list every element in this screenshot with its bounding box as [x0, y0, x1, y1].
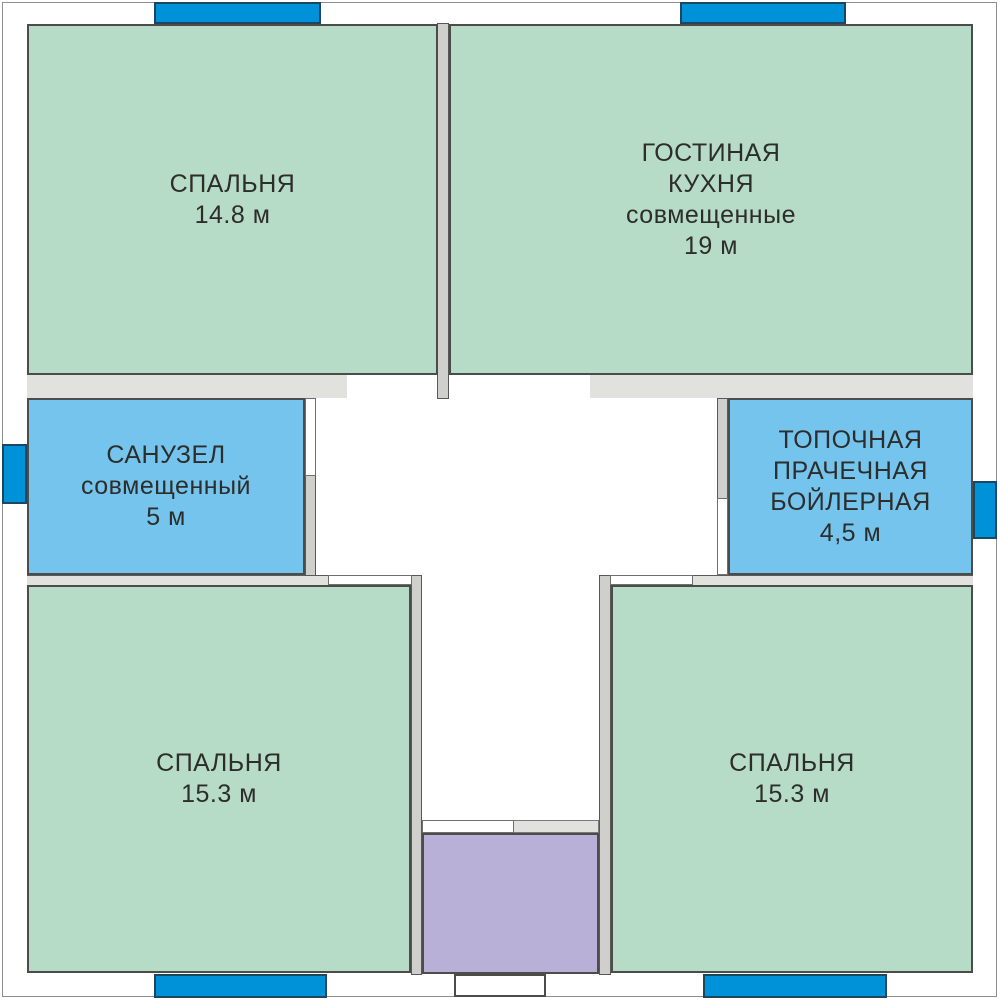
room-label-line: ТОПОЧНАЯ [770, 425, 931, 456]
room-label: СПАЛЬНЯ 14.8 м [170, 169, 296, 231]
room-label-line: 4,5 м [770, 518, 931, 549]
wall-strip-above-utility [513, 820, 599, 833]
room-bathroom: САНУЗЕЛ совмещенный 5 м [27, 398, 305, 575]
wall-bottom-right-bedroom-left [599, 575, 611, 975]
room-label-line: ГОСТИНАЯ [626, 138, 796, 169]
window-top-right [680, 2, 846, 24]
room-label-line: САНУЗЕЛ [81, 440, 251, 471]
room-label: ТОПОЧНАЯ ПРАЧЕЧНАЯ БОЙЛЕРНАЯ 4,5 м [770, 425, 931, 549]
room-label-line: БОЙЛЕРНАЯ [770, 487, 931, 518]
room-living-kitchen: ГОСТИНАЯ КУХНЯ совмещенные 19 м [449, 24, 973, 375]
wall-strip-top-left [27, 375, 347, 398]
room-label-line: 5 м [81, 502, 251, 533]
room-label: ГОСТИНАЯ КУХНЯ совмещенные 19 м [626, 138, 796, 262]
room-boiler-laundry: ТОПОЧНАЯ ПРАЧЕЧНАЯ БОЙЛЕРНАЯ 4,5 м [728, 398, 973, 575]
room-label-line: СПАЛЬНЯ [729, 748, 855, 779]
room-utility [422, 833, 599, 974]
wall-bathroom-right [305, 475, 316, 576]
wall-strip-top-right [590, 375, 973, 398]
door-bathroom [305, 398, 316, 476]
floor-plan: СПАЛЬНЯ 14.8 м ГОСТИНАЯ КУХНЯ совмещенны… [0, 0, 1000, 1000]
door-entrance [454, 974, 546, 997]
wall-boiler-left [717, 398, 728, 499]
wall-strip-bottom-left [27, 575, 328, 585]
room-label: САНУЗЕЛ совмещенный 5 м [81, 440, 251, 533]
room-label: СПАЛЬНЯ 15.3 м [156, 748, 282, 810]
door-bedroom-bottom-left [328, 575, 412, 585]
room-label-line: 15.3 м [729, 779, 855, 810]
window-bottom-right [703, 974, 887, 998]
room-label-line: 14.8 м [170, 200, 296, 231]
door-bedroom-bottom-right [610, 575, 693, 585]
room-bedroom-bottom-right: СПАЛЬНЯ 15.3 м [611, 585, 973, 973]
room-label-line: ПРАЧЕЧНАЯ [770, 456, 931, 487]
room-label-line: совмещенные [626, 200, 796, 231]
room-bedroom-bottom-left: СПАЛЬНЯ 15.3 м [27, 585, 411, 973]
room-label-line: совмещенный [81, 471, 251, 502]
window-bottom-left [154, 974, 327, 998]
room-label-line: СПАЛЬНЯ [170, 169, 296, 200]
room-label-line: 15.3 м [156, 779, 282, 810]
wall-strip-bottom-right [692, 575, 973, 585]
window-top-left [154, 2, 321, 24]
window-left [2, 444, 27, 504]
door-boiler [717, 498, 728, 575]
door-utility [422, 820, 514, 833]
wall-bottom-left-bedroom-right [411, 575, 422, 975]
window-right [973, 481, 997, 539]
room-bedroom-top-left: СПАЛЬНЯ 14.8 м [27, 24, 438, 375]
room-label-line: 19 м [626, 231, 796, 262]
room-label-line: СПАЛЬНЯ [156, 748, 282, 779]
wall-divider-top-rooms [437, 23, 449, 399]
room-label-line: КУХНЯ [626, 169, 796, 200]
room-label: СПАЛЬНЯ 15.3 м [729, 748, 855, 810]
